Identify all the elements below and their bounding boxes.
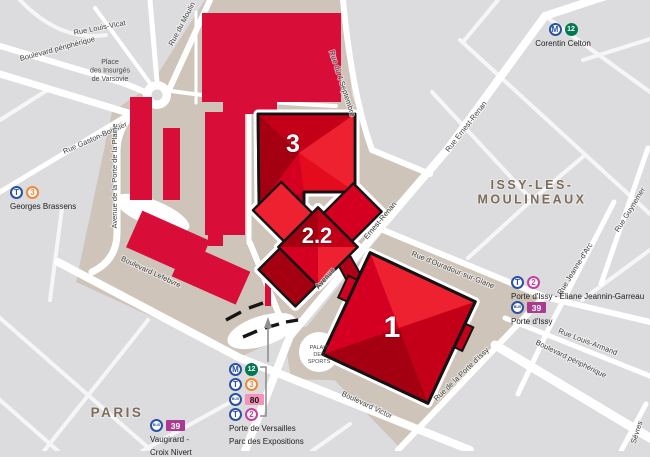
area-label-issy-les-moulineaux: MOULINEAUX: [477, 193, 586, 207]
area-label-paris: PARIS: [91, 405, 144, 420]
poi-label-place-des-insurges: de Varsovie: [92, 76, 129, 83]
station-georges-brassens[interactable]: T3Georges Brassens: [10, 186, 130, 212]
station-porte-d-issy-tram[interactable]: T2Porte d'Issy - Éliane Jeannin-Garreau: [511, 276, 650, 302]
station-label: Georges Brassens: [10, 202, 130, 212]
metro-icon: M: [229, 363, 242, 376]
line-2-badge: 2: [527, 276, 540, 289]
hall-number-hall-3: 3: [286, 130, 300, 158]
bus-icon: BUS: [150, 419, 163, 432]
line-12-badge: 12: [245, 363, 258, 376]
street-label: Avenue de la Porte de la Plaine: [110, 124, 119, 229]
station-label: Porte de Versailles: [229, 424, 339, 434]
poi-label-palais-des-sports: DES: [313, 352, 325, 358]
area-label-issy-les-moulineaux: ISSY-LES-: [491, 178, 574, 192]
line-2-badge: 2: [245, 408, 258, 421]
station-line-row: T2: [229, 408, 339, 421]
station-line-row: T3: [10, 186, 130, 199]
tram-icon: T: [511, 276, 524, 289]
poi-label-place-des-insurges: des Insurgés: [90, 68, 131, 75]
tram-icon: T: [10, 186, 23, 199]
station-label: Porte d'Issy: [511, 317, 611, 327]
hall-number-hall-1: 1: [384, 311, 401, 344]
station-line-row: BUS80: [229, 393, 339, 406]
station-porte-de-versailles[interactable]: M12T3BUS80T2Porte de VersaillesParc des …: [229, 363, 339, 446]
station-corentin-celton[interactable]: M12Corentin Celton: [498, 23, 628, 49]
station-vaugirard-croix-nivert[interactable]: BUS39Vaugirard -Croix Nivert: [150, 419, 240, 457]
station-line-row: BUS39: [511, 301, 611, 314]
station-line-row: M12: [229, 363, 339, 376]
line-3-badge: 3: [26, 186, 39, 199]
station-line-row: T3: [229, 378, 339, 391]
bus-39-badge: 39: [166, 420, 185, 431]
station-line-row: M12: [549, 23, 578, 36]
poi-label-place-des-insurges: Place: [101, 59, 119, 66]
poi-label-palais-des-sports: PALAIS: [310, 345, 329, 351]
metro-icon: M: [549, 23, 562, 36]
bus-icon: BUS: [229, 393, 242, 406]
line-12-badge: 12: [565, 23, 578, 36]
bus-80-badge: 80: [245, 394, 264, 405]
station-porte-d-issy-bus[interactable]: BUS39Porte d'Issy: [511, 301, 611, 327]
line-3-badge: 3: [245, 378, 258, 391]
station-label: Croix Nivert: [150, 448, 240, 457]
station-label: Corentin Celton: [535, 39, 591, 49]
screenshot-root: { "map": { "areas": [ {"id":"paris","lin…: [0, 0, 650, 451]
tram-icon: T: [229, 378, 242, 391]
station-label: Parc des Expositions: [229, 437, 339, 447]
bus-icon: BUS: [511, 301, 524, 314]
station-line-row: T2: [511, 276, 650, 289]
bus-39-badge: 39: [527, 302, 546, 313]
hall-number-hall-2-2: 2.2: [302, 223, 333, 248]
station-line-row: BUS39: [150, 419, 240, 432]
station-label: Vaugirard -: [150, 435, 240, 445]
